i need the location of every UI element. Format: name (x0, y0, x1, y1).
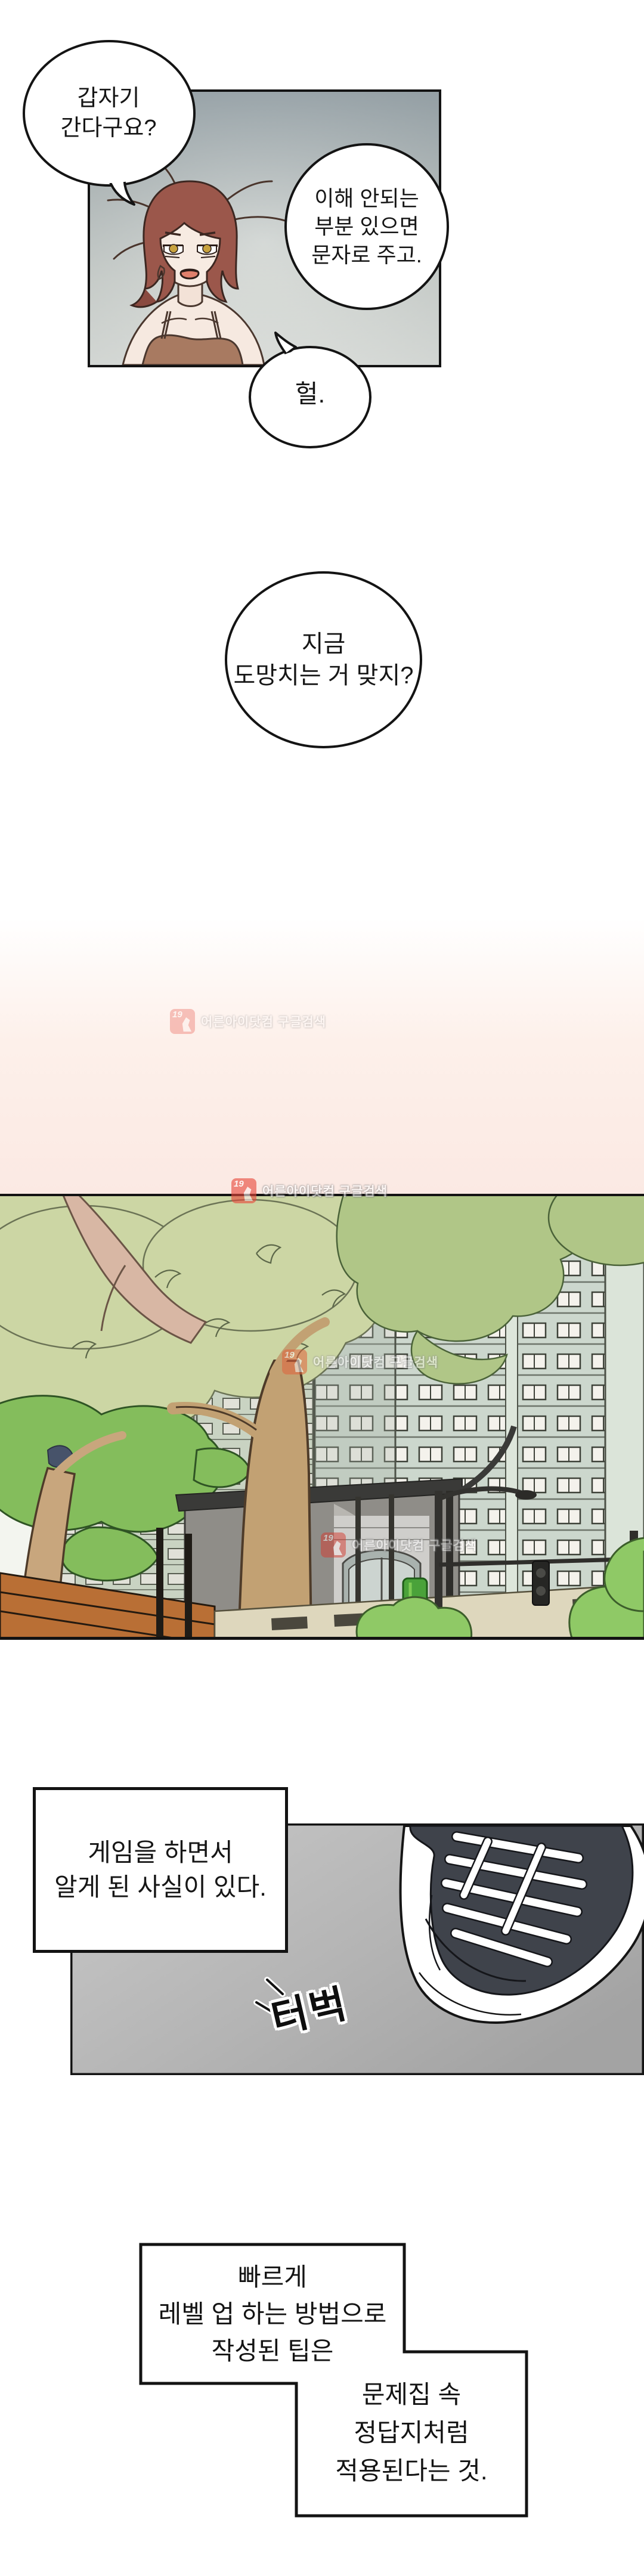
narration-box-tips: 빠르게 레벨 업 하는 방법으로 작성된 팁은 (141, 2259, 404, 2370)
watermark: 19 어른아이닷컴 구글검색 (282, 1349, 438, 1374)
watermark-text: 어른아이닷컴 구글검색 (352, 1536, 477, 1554)
bubble-line: 헐. (295, 377, 325, 410)
speech-bubble-sudden: 갑자기 간다구요? (22, 40, 195, 187)
watermark: 19 어른아이닷컴 구글검색 (231, 1178, 388, 1203)
speech-bubble-runaway: 지금 도망치는 거 맞지? (225, 571, 422, 748)
watermark-19-icon: 19 (321, 1532, 346, 1558)
bubble-line: 부분 있으면 (314, 212, 419, 241)
watermark: 19 어른아이닷컴 구글검색 (170, 1009, 326, 1034)
pink-gradient-band (0, 918, 644, 1194)
city-illustration (0, 1194, 644, 1640)
bubble-line: 문자로 주고. (311, 241, 422, 270)
bubble-line: 갑자기 (78, 83, 140, 113)
speech-bubble-text-me: 이해 안되는 부분 있으면 문자로 주고. (284, 143, 449, 310)
narration-box-game: 게임을 하면서 알게 된 사실이 있다. (33, 1787, 288, 1953)
story-panel-city (0, 1194, 644, 1640)
webtoon-page: 갑자기 간다구요? 이해 안되는 부분 있으면 문자로 주고. 헐. 지금 도망… (0, 0, 644, 2576)
narration-line: 작성된 팁은 (212, 2333, 334, 2370)
watermark-19-icon: 19 (170, 1009, 195, 1034)
watermark-figure-icon (293, 1358, 304, 1372)
narration-line: 정답지처럼 (354, 2414, 469, 2452)
narration-line: 게임을 하면서 (88, 1835, 233, 1870)
narration-line: 알게 된 사실이 있다. (54, 1870, 267, 1905)
narration-box-answer: 문제집 속 정답지처럼 적용된다는 것. (296, 2376, 527, 2490)
narration-line: 문제집 속 (362, 2376, 461, 2414)
bubble-line: 이해 안되는 (314, 184, 419, 213)
watermark-text: 어른아이닷컴 구글검색 (313, 1353, 438, 1371)
speech-bubble-heol: 헐. (249, 345, 371, 444)
watermark-text: 어른아이닷컴 구글검색 (201, 1013, 326, 1030)
watermark-figure-icon (243, 1187, 253, 1201)
narration-line: 빠르게 (238, 2259, 307, 2296)
narration-line: 적용된다는 것. (335, 2452, 487, 2490)
bubble-line: 도망치는 거 맞지? (233, 660, 413, 692)
watermark-figure-icon (181, 1017, 192, 1032)
watermark-figure-icon (332, 1541, 343, 1555)
watermark-19-icon: 19 (282, 1349, 307, 1374)
watermark: 19 어른아이닷컴 구글검색 (321, 1532, 477, 1558)
watermark-19-icon: 19 (231, 1178, 256, 1203)
bubble-line: 지금 (302, 628, 346, 660)
camisole (143, 335, 243, 365)
watermark-text: 어른아이닷컴 구글검색 (262, 1182, 388, 1200)
bubble-line: 간다구요? (61, 113, 157, 143)
narration-line: 레벨 업 하는 방법으로 (159, 2296, 387, 2333)
